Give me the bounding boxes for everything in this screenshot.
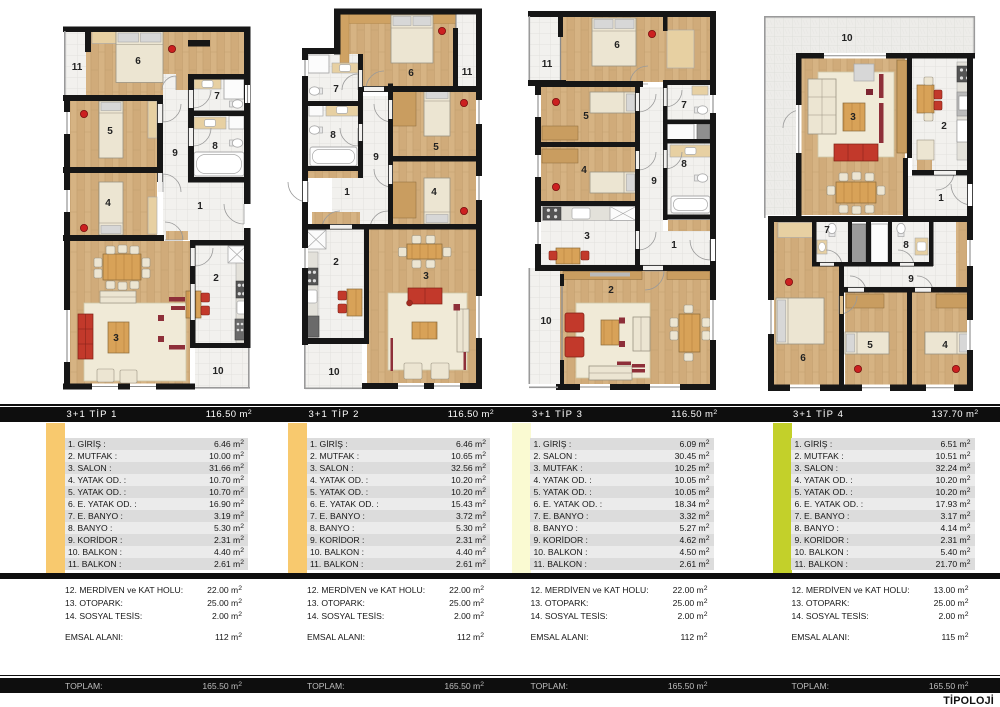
- svg-text:1: 1: [197, 201, 203, 212]
- svg-text:1: 1: [671, 240, 677, 251]
- svg-text:5: 5: [867, 340, 873, 351]
- svg-text:11: 11: [72, 62, 83, 73]
- svg-text:1: 1: [344, 187, 350, 198]
- svg-text:9: 9: [373, 152, 379, 163]
- svg-text:10: 10: [328, 367, 340, 378]
- svg-text:2: 2: [213, 273, 219, 284]
- svg-text:8: 8: [212, 141, 218, 152]
- svg-text:11: 11: [542, 59, 553, 70]
- svg-text:2: 2: [608, 285, 614, 296]
- svg-text:4: 4: [105, 198, 111, 209]
- svg-text:6: 6: [800, 353, 806, 364]
- svg-text:2: 2: [941, 121, 947, 132]
- svg-text:9: 9: [651, 176, 657, 187]
- svg-text:4: 4: [581, 165, 587, 176]
- svg-text:7: 7: [333, 84, 339, 95]
- svg-text:5: 5: [583, 111, 589, 122]
- svg-text:4: 4: [942, 340, 948, 351]
- svg-text:2: 2: [333, 257, 339, 268]
- svg-text:5: 5: [107, 126, 113, 137]
- svg-text:7: 7: [214, 91, 220, 102]
- svg-text:5: 5: [433, 142, 439, 153]
- svg-text:8: 8: [681, 159, 687, 170]
- svg-text:7: 7: [824, 225, 830, 236]
- svg-text:10: 10: [841, 33, 853, 44]
- svg-text:9: 9: [172, 148, 178, 159]
- svg-text:3: 3: [850, 112, 856, 123]
- svg-text:3: 3: [423, 271, 429, 282]
- svg-text:1: 1: [938, 193, 944, 204]
- svg-text:6: 6: [408, 68, 414, 79]
- svg-text:10: 10: [212, 366, 224, 377]
- svg-text:4: 4: [431, 187, 437, 198]
- svg-text:10: 10: [540, 316, 552, 327]
- svg-text:11: 11: [462, 67, 473, 78]
- svg-text:6: 6: [135, 56, 141, 67]
- svg-text:9: 9: [908, 274, 914, 285]
- svg-text:3: 3: [584, 231, 590, 242]
- svg-text:6: 6: [614, 40, 620, 51]
- svg-text:3: 3: [113, 333, 119, 344]
- svg-text:8: 8: [330, 130, 336, 141]
- svg-text:7: 7: [681, 100, 687, 111]
- svg-text:8: 8: [903, 240, 909, 251]
